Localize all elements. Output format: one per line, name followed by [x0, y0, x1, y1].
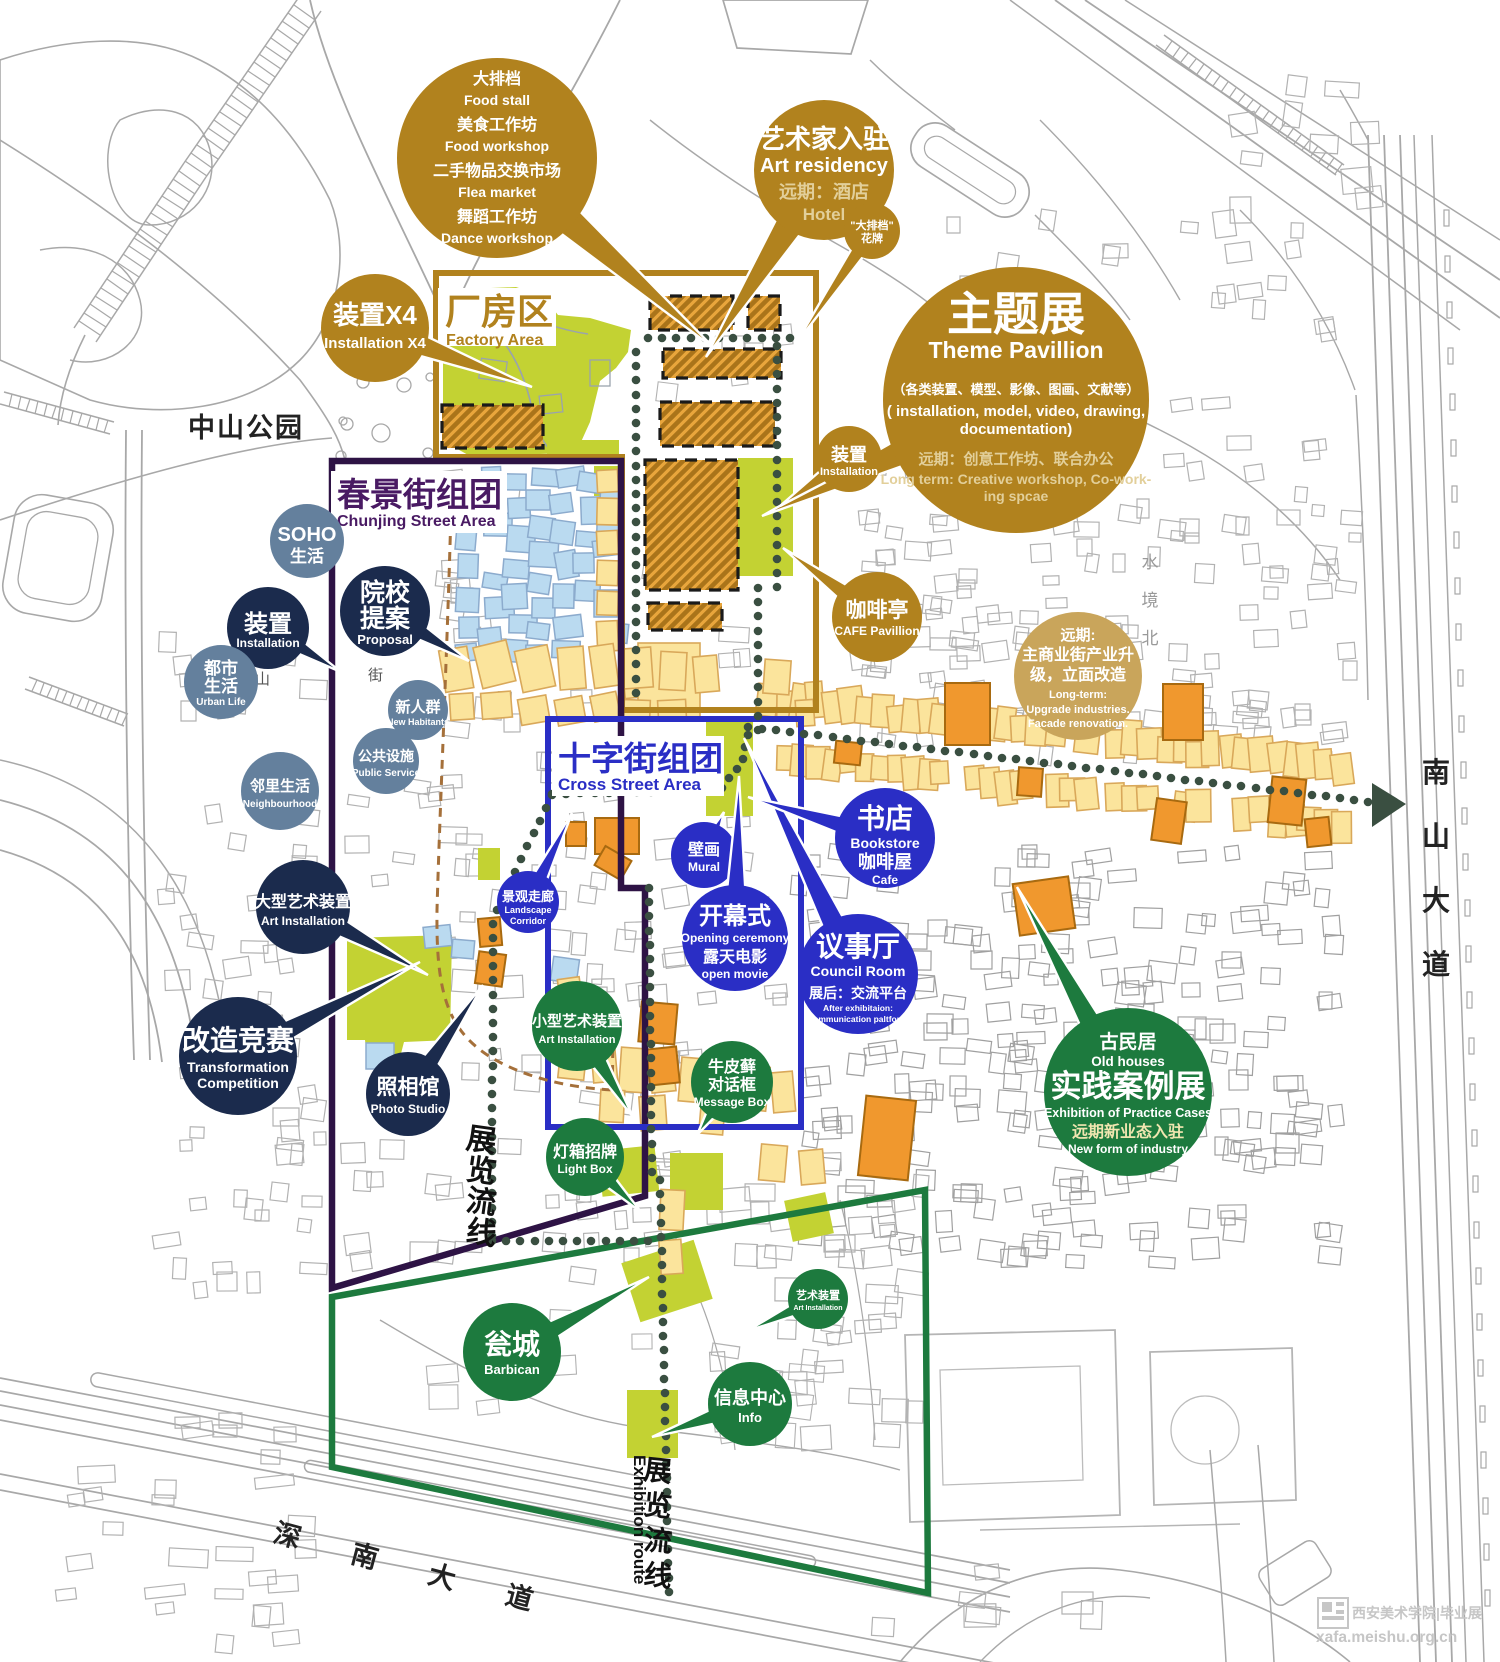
svg-text:艺术装置: 艺术装置	[796, 1288, 840, 1302]
svg-text:花牌: 花牌	[861, 231, 883, 245]
svg-text:壁画: 壁画	[688, 840, 720, 859]
svg-text:大排档: 大排档	[473, 69, 521, 88]
svg-text:景观走廊: 景观走廊	[502, 889, 554, 904]
svg-text:生活: 生活	[204, 676, 238, 696]
svg-text:展后：交流平台: 展后：交流平台	[809, 985, 907, 1001]
svg-text:Barbican: Barbican	[484, 1362, 540, 1377]
svg-text:大型艺术装置: 大型艺术装置	[255, 892, 351, 911]
svg-text:照相馆: 照相馆	[377, 1075, 440, 1099]
svg-text:Cross Street Area: Cross Street Area	[558, 775, 702, 794]
svg-text:远期：酒店: 远期：酒店	[779, 181, 869, 202]
svg-text:街: 街	[368, 667, 383, 684]
svg-text:南: 南	[1422, 757, 1450, 788]
svg-text:CAFE Pavillion: CAFE Pavillion	[834, 624, 919, 638]
svg-text:Flea market: Flea market	[458, 184, 536, 200]
svg-text:春景街组团: 春景街组团	[337, 476, 502, 513]
svg-text:二手物品交换市场: 二手物品交换市场	[433, 161, 561, 180]
svg-text:Dance workshop: Dance workshop	[441, 230, 553, 246]
svg-text:Chunjing Street Area: Chunjing Street Area	[337, 513, 496, 530]
svg-text:ing spcae: ing spcae	[984, 488, 1049, 504]
svg-text:书店: 书店	[857, 803, 913, 834]
svg-text:SOHO: SOHO	[278, 524, 337, 546]
svg-text:信息中心: 信息中心	[714, 1387, 786, 1408]
svg-text:Exhibition route: Exhibition route	[630, 1455, 649, 1584]
svg-text:xafa.meishu.org.cn: xafa.meishu.org.cn	[1316, 1629, 1457, 1646]
svg-text:Long term: Creative workshop,: Long term: Creative workshop, Co-work-	[881, 471, 1152, 487]
svg-text:公共设施: 公共设施	[358, 748, 414, 764]
svg-text:咖啡屋: 咖啡屋	[858, 851, 912, 872]
svg-text:Public Service: Public Service	[352, 768, 421, 779]
svg-text:新人群: 新人群	[395, 698, 440, 716]
svg-text:Art Installation: Art Installation	[261, 914, 345, 928]
svg-text:大: 大	[1422, 885, 1450, 916]
svg-text:Proposal: Proposal	[357, 632, 413, 647]
svg-text:境: 境	[1142, 591, 1159, 610]
svg-text:装置: 装置	[831, 444, 867, 465]
svg-text:级，立面改造: 级，立面改造	[1030, 665, 1127, 684]
svg-text:开幕式: 开幕式	[699, 903, 771, 930]
svg-text:小型艺术装置: 小型艺术装置	[532, 1012, 622, 1030]
svg-text:远期：创意工作坊、联合办公: 远期：创意工作坊、联合办公	[918, 450, 1113, 468]
svg-text:Urban Life: Urban Life	[196, 697, 246, 708]
svg-text:十字街组团: 十字街组团	[558, 740, 723, 777]
svg-text:美食工作坊: 美食工作坊	[457, 115, 537, 134]
svg-text:院校: 院校	[360, 578, 411, 607]
svg-text:Photo Studio: Photo Studio	[371, 1102, 446, 1116]
svg-text:New form of industry: New form of industry	[1068, 1142, 1188, 1156]
svg-text:道: 道	[1422, 948, 1450, 980]
svg-text:装置: 装置	[244, 611, 292, 638]
svg-text:documentation): documentation)	[960, 421, 1073, 438]
svg-text:Food stall: Food stall	[464, 92, 530, 108]
svg-text:厂房区: 厂房区	[445, 291, 553, 332]
svg-text:Food workshop: Food workshop	[445, 138, 549, 154]
svg-text:"大排档": "大排档"	[850, 218, 893, 232]
svg-text:Info: Info	[738, 1410, 762, 1425]
svg-text:瓮城: 瓮城	[484, 1329, 540, 1360]
svg-text:中山公园: 中山公园	[188, 413, 304, 443]
svg-text:艺术家入驻: 艺术家入驻	[759, 124, 889, 154]
svg-text:Message Box: Message Box	[694, 1095, 771, 1109]
svg-text:Installation X4: Installation X4	[324, 335, 426, 352]
svg-text:Corridor: Corridor	[510, 916, 546, 926]
svg-text:议事厅: 议事厅	[816, 931, 900, 962]
svg-text:Hotel: Hotel	[803, 205, 846, 224]
svg-text:Competition: Competition	[197, 1075, 279, 1091]
svg-text:Old houses: Old houses	[1091, 1054, 1165, 1069]
svg-text:( installation, model, video,: ( installation, model, video, drawing,	[887, 403, 1145, 420]
svg-text:Art Installation: Art Installation	[538, 1034, 615, 1046]
svg-text:提案: 提案	[360, 604, 411, 633]
svg-text:Long-term:: Long-term:	[1049, 689, 1107, 701]
svg-text:古民居: 古民居	[1099, 1030, 1156, 1053]
svg-text:（各类装置、模型、影像、图画、文献等）: （各类装置、模型、影像、图画、文献等）	[892, 382, 1139, 397]
svg-text:北: 北	[1142, 629, 1159, 648]
svg-text:Landscape: Landscape	[504, 905, 551, 915]
svg-text:Theme Pavillion: Theme Pavillion	[928, 337, 1103, 363]
svg-text:New Habitants: New Habitants	[387, 717, 449, 727]
svg-text:open movie: open movie	[702, 967, 769, 981]
svg-text:咖啡亭: 咖啡亭	[846, 598, 909, 622]
svg-text:Factory Area: Factory Area	[446, 332, 543, 349]
svg-text:改造竞赛: 改造竞赛	[182, 1024, 295, 1056]
svg-text:communication paltform: communication paltform	[808, 1014, 908, 1024]
svg-text:Art Installation: Art Installation	[793, 1305, 842, 1312]
svg-text:Mural: Mural	[688, 860, 720, 874]
svg-text:主题展: 主题展	[947, 288, 1085, 340]
svg-text:Transformation: Transformation	[187, 1059, 289, 1075]
svg-text:远期:: 远期:	[1061, 626, 1096, 644]
svg-text:主商业街产业升: 主商业街产业升	[1022, 645, 1134, 664]
svg-text:都市: 都市	[203, 658, 238, 678]
svg-text:装置X4: 装置X4	[333, 300, 417, 330]
svg-text:Bookstore: Bookstore	[850, 835, 919, 851]
svg-text:舞蹈工作坊: 舞蹈工作坊	[457, 207, 537, 226]
svg-text:Cafe: Cafe	[872, 873, 898, 887]
svg-text:实践案例展: 实践案例展	[1051, 1069, 1206, 1104]
svg-text:Installation: Installation	[820, 466, 878, 478]
svg-text:Installation: Installation	[236, 636, 299, 650]
svg-text:山: 山	[1422, 821, 1450, 852]
svg-text:Neighbourhood: Neighbourhood	[243, 799, 317, 810]
svg-text:After exhibitaion:: After exhibitaion:	[823, 1003, 893, 1013]
svg-text:水: 水	[1142, 553, 1159, 572]
svg-text:线: 线	[464, 1215, 498, 1252]
svg-text:Light Box: Light Box	[557, 1162, 613, 1176]
svg-text:Council Room: Council Room	[811, 963, 906, 979]
svg-text:Exhibition of Practice Cases: Exhibition of Practice Cases	[1044, 1106, 1212, 1120]
svg-text:Art residency: Art residency	[760, 155, 889, 177]
svg-text:灯箱招牌: 灯箱招牌	[553, 1142, 617, 1161]
svg-text:邻里生活: 邻里生活	[249, 777, 310, 795]
svg-text:牛皮藓: 牛皮藓	[708, 1057, 756, 1076]
svg-text:西安美术学院|毕业展: 西安美术学院|毕业展	[1352, 1605, 1482, 1621]
svg-text:Opening ceremony: Opening ceremony	[681, 931, 790, 945]
svg-text:生活: 生活	[290, 546, 324, 566]
svg-text:露天电影: 露天电影	[703, 947, 767, 966]
svg-text:Facade renovation.: Facade renovation.	[1028, 718, 1128, 730]
svg-text:远期新业态入驻: 远期新业态入驻	[1072, 1122, 1184, 1141]
svg-text:对话框: 对话框	[708, 1075, 756, 1094]
svg-text:Upgrade industries.: Upgrade industries.	[1026, 704, 1129, 716]
